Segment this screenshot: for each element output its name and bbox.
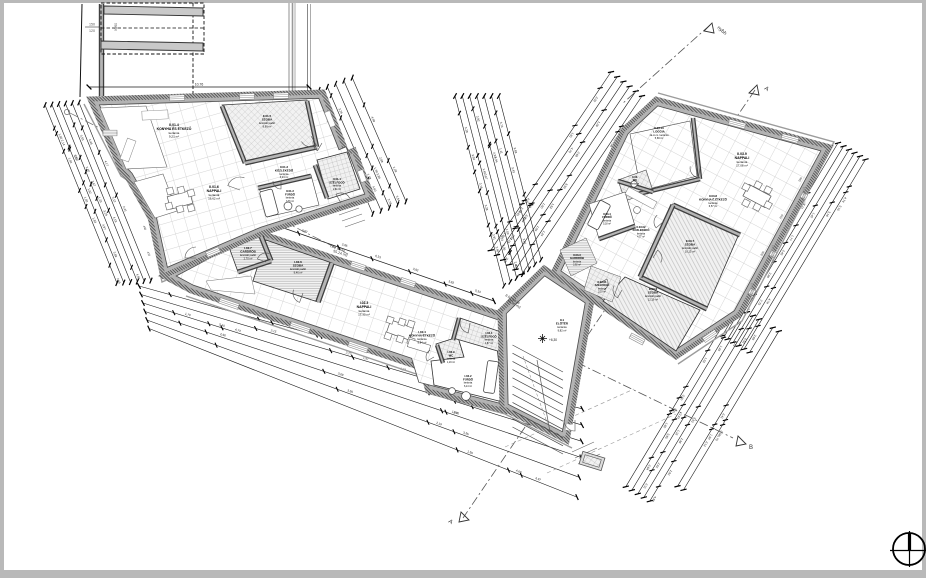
svg-text:6,57 m²: 6,57 m² [709, 205, 718, 208]
svg-text:B: B [749, 445, 753, 451]
svg-text:2,70 m²: 2,70 m² [244, 257, 253, 261]
svg-text:SZOBA: SZOBA [648, 291, 659, 295]
svg-text:laminált padló: laminált padló [290, 267, 307, 271]
svg-text:SZOBA: SZOBA [262, 118, 273, 122]
svg-text:2,92 m²: 2,92 m² [573, 264, 581, 267]
svg-text:KONYHA-ÉTKEZŐ: KONYHA-ÉTKEZŐ [409, 333, 436, 338]
svg-text:150: 150 [89, 23, 95, 27]
svg-text:4,24 m²: 4,24 m² [280, 176, 289, 179]
svg-text:4,77 m²: 4,77 m² [637, 236, 645, 239]
svg-text:SZÉLFOGÓ: SZÉLFOGÓ [481, 333, 497, 338]
svg-text:1,19 m²: 1,19 m² [447, 361, 455, 364]
svg-text:9,21 m²: 9,21 m² [169, 135, 179, 139]
svg-text:ELŐTÉR: ELŐTÉR [556, 321, 569, 326]
svg-text:10,76: 10,76 [195, 83, 204, 87]
svg-text:8,99 m²: 8,99 m² [263, 125, 272, 129]
svg-text:17,30 m²: 17,30 m² [358, 313, 370, 317]
svg-text:FÜRDŐ: FÜRDŐ [285, 191, 296, 196]
svg-text:GARDRÓB: GARDRÓB [240, 249, 256, 254]
svg-text:SZÉLFOGÓ: SZÉLFOGÓ [329, 179, 345, 184]
svg-text:kerámia: kerámia [637, 232, 646, 235]
svg-text:6,14 m²: 6,14 m² [464, 385, 472, 388]
svg-text:2,19 m²: 2,19 m² [598, 291, 606, 294]
svg-text:kerámia: kerámia [631, 182, 640, 185]
svg-text:2,61 m²: 2,61 m² [333, 188, 341, 191]
svg-text:WC: WC [633, 178, 638, 182]
svg-text:laminált padló: laminált padló [259, 121, 276, 125]
svg-text:90/60: 90/60 [114, 23, 118, 31]
svg-text:FÜRDŐ: FÜRDŐ [463, 376, 474, 381]
svg-text:laminált padló: laminált padló [645, 294, 662, 298]
svg-text:9,82 m²: 9,82 m² [558, 329, 567, 333]
svg-text:4,87 m²: 4,87 m² [485, 342, 493, 345]
svg-text:120: 120 [89, 29, 95, 33]
svg-text:kerámia: kerámia [417, 337, 427, 341]
svg-text:KONYHA É.ÉTKEZŐ: KONYHA É.ÉTKEZŐ [699, 196, 727, 201]
svg-text:SZOBA: SZOBA [293, 264, 304, 268]
svg-text:kerámia: kerámia [598, 287, 607, 290]
svg-text:16,62 m²: 16,62 m² [208, 197, 220, 201]
svg-text:LOGGIA: LOGGIA [653, 129, 665, 133]
svg-text:5,69 m²: 5,69 m² [655, 137, 664, 140]
svg-text:kerámia: kerámia [573, 260, 582, 263]
svg-text:5,18 m²: 5,18 m² [603, 223, 611, 226]
svg-text:laminált padló: laminált padló [240, 253, 257, 257]
svg-text:17,08 m²: 17,08 m² [736, 164, 748, 168]
svg-text:SZOBA: SZOBA [685, 243, 696, 247]
svg-text:3,76 m²: 3,76 m² [286, 200, 294, 203]
svg-text:laminált padló: laminált padló [682, 246, 699, 250]
svg-text:kerámia: kerámia [557, 325, 567, 329]
svg-text:10,13 m²: 10,13 m² [685, 250, 695, 254]
svg-text:+6,30: +6,30 [549, 338, 557, 342]
svg-text:KÖZLEKEDŐ: KÖZLEKEDŐ [275, 167, 294, 172]
svg-text:8,94 m²: 8,94 m² [418, 341, 427, 345]
svg-text:12,19 m²: 12,19 m² [648, 298, 658, 302]
svg-text:kerámia: kerámia [603, 219, 612, 222]
svg-text:9,46 m²: 9,46 m² [294, 271, 303, 275]
